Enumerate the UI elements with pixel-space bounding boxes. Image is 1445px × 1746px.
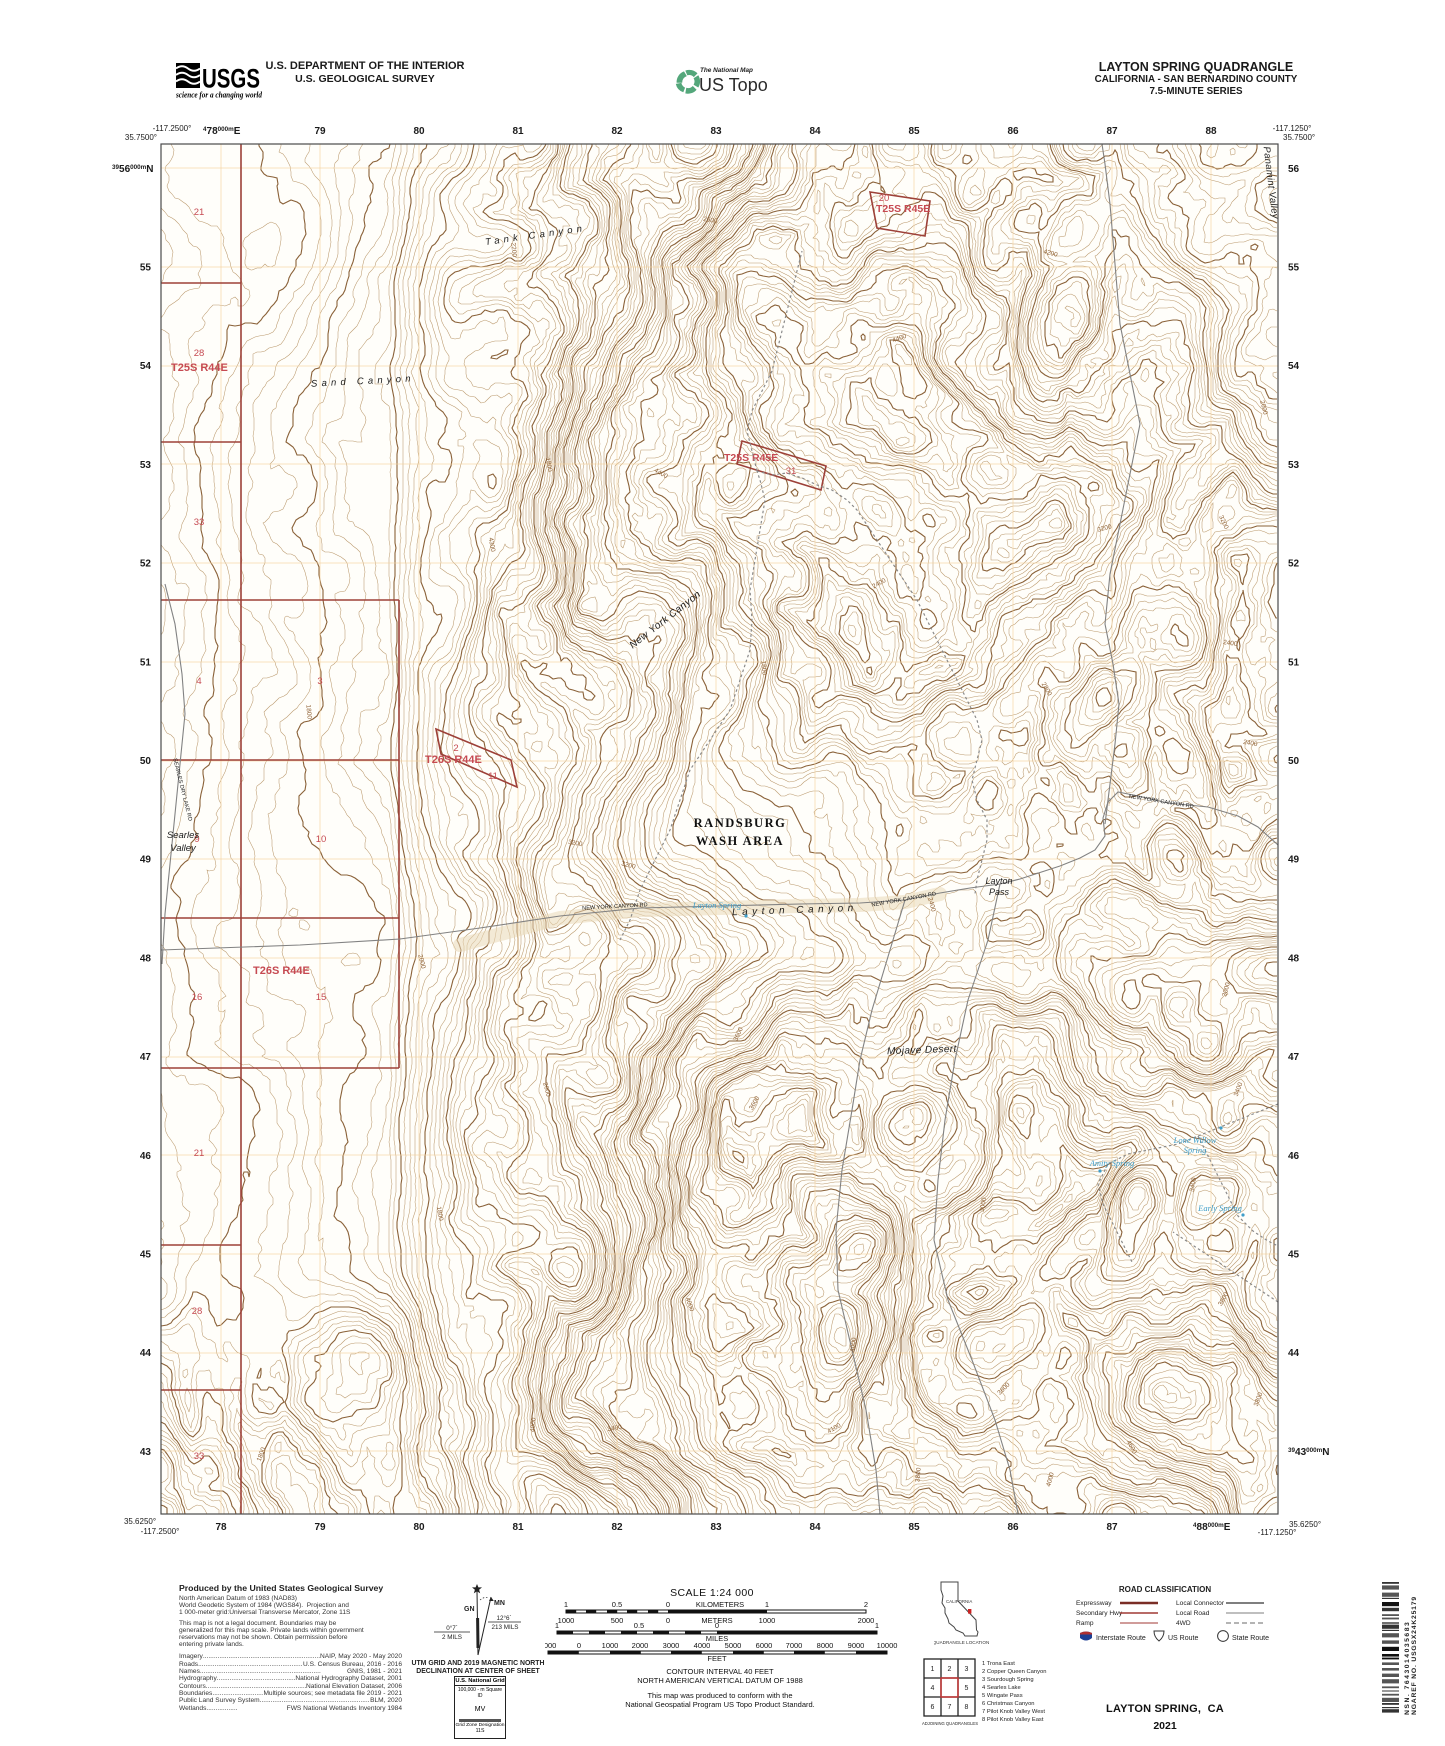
svg-text:3000: 3000 [663, 1641, 680, 1650]
svg-text:Local Connector: Local Connector [1176, 1600, 1225, 1607]
svg-text:28: 28 [192, 1306, 203, 1317]
svg-text:Layton Spring: Layton Spring [692, 900, 741, 910]
svg-text:0: 0 [666, 1616, 670, 1625]
svg-text:NGAREF NO. USGSX24K25179: NGAREF NO. USGSX24K25179 [1411, 1596, 1418, 1715]
svg-text:2200: 2200 [509, 242, 517, 257]
svg-text:3: 3 [965, 1666, 969, 1673]
svg-text:CALIFORNIA: CALIFORNIA [946, 1599, 972, 1604]
svg-text:-117.1250°: -117.1250° [1258, 1528, 1297, 1537]
svg-text:28: 28 [194, 348, 205, 359]
svg-text:KILOMETERS: KILOMETERS [696, 1600, 744, 1609]
svg-text:500: 500 [611, 1616, 624, 1625]
svg-text:488000mE: 488000mE [1193, 1522, 1231, 1533]
svg-text:45: 45 [140, 1250, 152, 1261]
svg-text:2 Copper Queen Canyon: 2 Copper Queen Canyon [982, 1669, 1046, 1675]
svg-text:48: 48 [1288, 953, 1300, 964]
svg-text:RANDSBURG: RANDSBURG [694, 816, 787, 830]
svg-text:Expressway: Expressway [1076, 1600, 1112, 1607]
svg-text:52: 52 [1288, 559, 1300, 570]
svg-text:5000: 5000 [725, 1641, 742, 1650]
svg-text:3943000mN: 3943000mN [1288, 1447, 1329, 1458]
svg-text:ADJOINING QUADRANGLES: ADJOINING QUADRANGLES [922, 1721, 978, 1726]
svg-text:0: 0 [715, 1621, 719, 1630]
svg-text:US Route: US Route [1168, 1635, 1198, 1642]
svg-text:ROAD CLASSIFICATION: ROAD CLASSIFICATION [1119, 1585, 1212, 1594]
svg-text:88: 88 [1205, 126, 1217, 137]
svg-text:Valley: Valley [170, 843, 197, 854]
svg-text:50: 50 [140, 756, 152, 767]
svg-text:7: 7 [948, 1704, 952, 1711]
svg-text:1800: 1800 [759, 660, 767, 675]
svg-text:4: 4 [931, 1685, 935, 1692]
svg-text:53: 53 [140, 460, 152, 471]
svg-text:2000: 2000 [632, 1641, 649, 1650]
svg-text:2 MILS: 2 MILS [442, 1634, 462, 1641]
svg-text:55: 55 [140, 263, 152, 274]
svg-text:79: 79 [314, 1522, 326, 1533]
svg-text:Spring: Spring [1184, 1145, 1207, 1155]
svg-text:2: 2 [453, 743, 458, 754]
svg-text:49: 49 [1288, 855, 1300, 866]
svg-text:Pass: Pass [989, 887, 1010, 897]
svg-text:6000: 6000 [756, 1641, 773, 1650]
svg-text:81: 81 [512, 1522, 524, 1533]
svg-text:Searles: Searles [167, 830, 199, 841]
svg-text:10: 10 [316, 834, 327, 845]
svg-text:12°6´: 12°6´ [496, 1614, 511, 1622]
svg-text:54: 54 [140, 361, 152, 372]
svg-text:83: 83 [710, 1522, 722, 1533]
svg-text:87: 87 [1106, 126, 1118, 137]
svg-text:T26S R44E: T26S R44E [425, 754, 482, 766]
svg-text:3: 3 [317, 676, 322, 687]
svg-text:Secondary Hwy: Secondary Hwy [1076, 1610, 1123, 1617]
svg-text:Local Road: Local Road [1176, 1610, 1210, 1617]
svg-text:0°7´: 0°7´ [446, 1624, 458, 1632]
svg-text:6: 6 [931, 1704, 935, 1711]
svg-text:49: 49 [140, 855, 152, 866]
svg-text:54: 54 [1288, 361, 1300, 372]
svg-text:2: 2 [864, 1600, 868, 1609]
svg-text:0.5: 0.5 [634, 1621, 644, 1630]
svg-text:1800: 1800 [304, 704, 312, 719]
svg-text:3956000mN: 3956000mN [112, 164, 153, 175]
svg-text:WASH AREA: WASH AREA [696, 834, 784, 848]
svg-text:0: 0 [666, 1600, 670, 1609]
svg-text:4000: 4000 [694, 1641, 711, 1650]
svg-text:78: 78 [215, 1522, 227, 1533]
svg-text:5: 5 [965, 1685, 969, 1692]
svg-text:478000mE: 478000mE [203, 126, 241, 137]
svg-text:4 Searles Lake: 4 Searles Lake [982, 1685, 1021, 1691]
svg-text:Interstate Route: Interstate Route [1096, 1635, 1146, 1642]
svg-text:7000: 7000 [786, 1641, 803, 1650]
svg-text:21: 21 [194, 207, 205, 218]
svg-text:44: 44 [1288, 1348, 1300, 1359]
svg-text:3800: 3800 [914, 1467, 922, 1482]
svg-text:1: 1 [875, 1621, 879, 1630]
svg-text:9000: 9000 [848, 1641, 865, 1650]
svg-text:11: 11 [488, 771, 498, 782]
svg-text:84: 84 [809, 1522, 821, 1533]
svg-text:47: 47 [1288, 1052, 1300, 1063]
svg-text:State Route: State Route [1232, 1635, 1269, 1642]
svg-text:33: 33 [194, 1451, 205, 1462]
svg-text:GN: GN [464, 1606, 475, 1613]
svg-text:8: 8 [965, 1704, 969, 1711]
svg-text:Lone Willow: Lone Willow [1173, 1135, 1217, 1145]
svg-text:48: 48 [140, 953, 152, 964]
svg-text:15: 15 [316, 992, 327, 1003]
svg-text:T25S R45E: T25S R45E [876, 203, 930, 215]
svg-text:T26S R44E: T26S R44E [253, 965, 310, 977]
svg-text:82: 82 [611, 1522, 623, 1533]
svg-text:45: 45 [1288, 1250, 1300, 1261]
svg-text:21: 21 [194, 1148, 205, 1159]
svg-text:4000: 4000 [529, 1417, 537, 1432]
svg-text:1000: 1000 [545, 1641, 556, 1650]
svg-text:53: 53 [1288, 460, 1300, 471]
svg-text:80: 80 [413, 126, 425, 137]
svg-text:-117.2500°: -117.2500° [141, 1527, 180, 1536]
svg-text:85: 85 [908, 1522, 920, 1533]
svg-text:213 MILS: 213 MILS [492, 1624, 519, 1631]
svg-text:46: 46 [1288, 1151, 1300, 1162]
svg-text:86: 86 [1007, 126, 1019, 137]
svg-text:-117.1250°: -117.1250° [1273, 124, 1312, 133]
svg-text:50: 50 [1288, 756, 1300, 767]
svg-text:1000: 1000 [759, 1616, 776, 1625]
svg-text:51: 51 [140, 657, 152, 668]
svg-text:MN: MN [494, 1600, 505, 1607]
svg-text:FEET: FEET [707, 1654, 727, 1663]
svg-text:1000: 1000 [602, 1641, 619, 1650]
svg-text:87: 87 [1106, 1522, 1118, 1533]
svg-text:0.5: 0.5 [612, 1600, 622, 1609]
svg-text:33: 33 [194, 517, 205, 528]
svg-text:1: 1 [765, 1600, 769, 1609]
svg-text:85: 85 [908, 126, 920, 137]
svg-text:SCALE 1:24 000: SCALE 1:24 000 [670, 1587, 754, 1599]
svg-text:QUADRANGLE LOCATION: QUADRANGLE LOCATION [934, 1640, 989, 1645]
svg-text:35.7500°: 35.7500° [1283, 133, 1315, 142]
svg-text:56: 56 [1288, 164, 1300, 175]
svg-text:46: 46 [140, 1151, 152, 1162]
svg-text:Early Spring: Early Spring [1197, 1203, 1242, 1213]
svg-text:Ramp: Ramp [1076, 1620, 1094, 1627]
svg-text:1 Trona East: 1 Trona East [982, 1661, 1015, 1667]
svg-text:10000: 10000 [877, 1641, 898, 1650]
svg-text:86: 86 [1007, 1522, 1019, 1533]
svg-text:Amity Spring: Amity Spring [1089, 1158, 1135, 1168]
svg-text:35.7500°: 35.7500° [125, 133, 157, 142]
svg-text:UTM GRID AND 2019 MAGNETIC NOR: UTM GRID AND 2019 MAGNETIC NORTH [412, 1660, 545, 1667]
svg-text:55: 55 [1288, 263, 1300, 274]
svg-text:2000: 2000 [858, 1616, 875, 1625]
svg-text:1000: 1000 [558, 1616, 575, 1625]
svg-text:81: 81 [512, 126, 524, 137]
svg-text:84: 84 [809, 126, 821, 137]
svg-text:T25S R44E: T25S R44E [171, 362, 228, 374]
svg-text:DECLINATION AT CENTER OF SHEET: DECLINATION AT CENTER OF SHEET [416, 1668, 540, 1675]
svg-text:Layton: Layton [985, 876, 1012, 886]
svg-text:4WD: 4WD [1176, 1620, 1191, 1627]
svg-text:8000: 8000 [817, 1641, 834, 1650]
svg-text:79: 79 [314, 126, 326, 137]
svg-text:1: 1 [931, 1666, 935, 1673]
svg-text:3 Sourdough Spring: 3 Sourdough Spring [982, 1677, 1034, 1683]
svg-text:0: 0 [577, 1641, 581, 1650]
svg-text:52: 52 [140, 559, 152, 570]
svg-text:80: 80 [413, 1522, 425, 1533]
svg-text:35.6250°: 35.6250° [124, 1517, 156, 1526]
svg-text:5 Wingate Pass: 5 Wingate Pass [982, 1693, 1023, 1699]
svg-text:T25S R45E: T25S R45E [724, 452, 778, 464]
svg-text:1: 1 [555, 1621, 559, 1630]
svg-text:NSN. 7643014035683: NSN. 7643014035683 [1404, 1621, 1411, 1715]
svg-text:82: 82 [611, 126, 623, 137]
svg-text:47: 47 [140, 1052, 152, 1063]
svg-text:16: 16 [192, 992, 203, 1003]
svg-text:43: 43 [140, 1447, 152, 1458]
svg-text:4: 4 [196, 676, 201, 687]
svg-text:83: 83 [710, 126, 722, 137]
svg-text:2: 2 [948, 1666, 952, 1673]
svg-text:-117.2500°: -117.2500° [153, 124, 192, 133]
svg-text:44: 44 [140, 1348, 152, 1359]
svg-text:51: 51 [1288, 657, 1300, 668]
svg-text:1: 1 [564, 1600, 568, 1609]
